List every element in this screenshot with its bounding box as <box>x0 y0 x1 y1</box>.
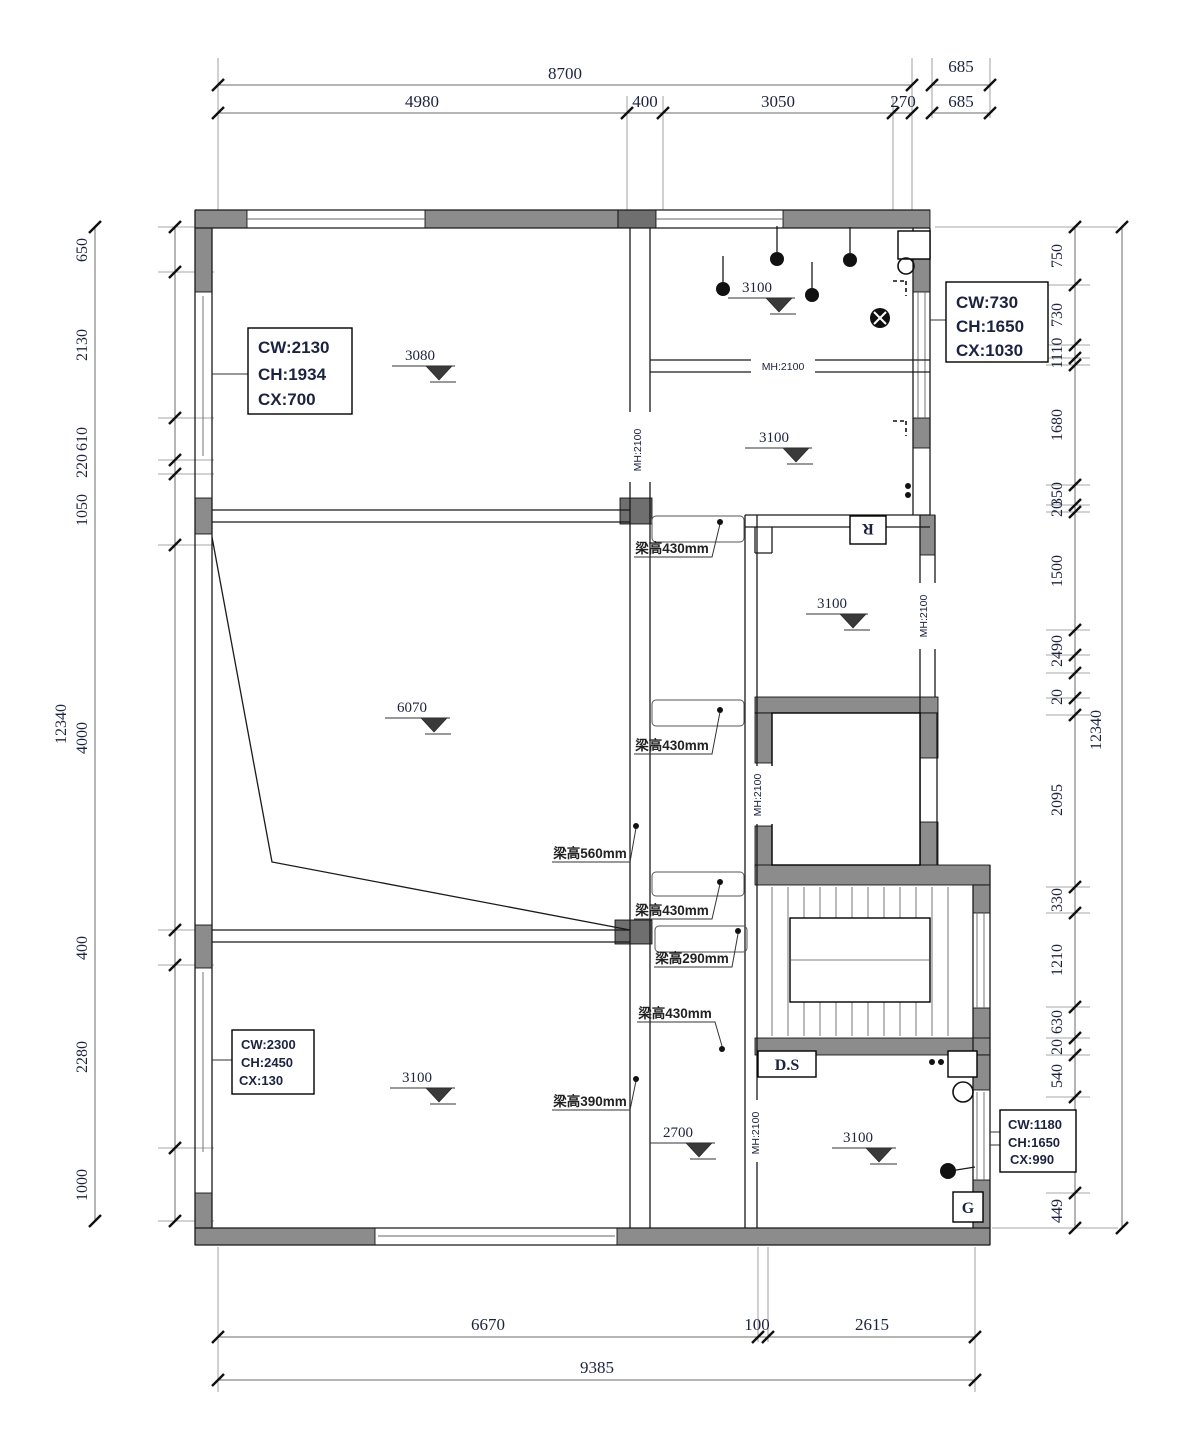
dim-right-seg: 2095 <box>1049 784 1066 816</box>
switch-icon <box>893 421 906 436</box>
dim-right-seg: 1210 <box>1049 944 1066 976</box>
svg-text:CW:1180: CW:1180 <box>1008 1117 1062 1132</box>
svg-text:3080: 3080 <box>405 348 435 364</box>
svg-text:CH:2450: CH:2450 <box>241 1055 293 1070</box>
elevation-room-bottom-right: 3100 <box>832 1130 897 1164</box>
dim-right-seg: 330 <box>1049 888 1066 912</box>
svg-text:CX:990: CX:990 <box>1010 1152 1054 1167</box>
pendant-light-icon <box>940 1163 956 1179</box>
elevation-room-top-right-1: 3100 <box>728 280 796 314</box>
door-height-label: MH:2100 <box>752 774 764 817</box>
dim-left-seg: 1000 <box>74 1169 91 1201</box>
svg-text:CX:700: CX:700 <box>258 390 316 409</box>
dim-right-seg: 540 <box>1049 1064 1066 1088</box>
dim-bottom-seg: 2615 <box>855 1315 889 1334</box>
beam-height-label: 梁高290mm <box>654 950 729 966</box>
tag-gas: G <box>962 1200 975 1217</box>
door-height-label: MH:2100 <box>918 595 930 638</box>
svg-text:CW:730: CW:730 <box>956 293 1018 312</box>
door-height-label: MH:2100 <box>750 1112 762 1155</box>
exhaust-fan-icon <box>870 308 890 328</box>
svg-text:CH:1650: CH:1650 <box>1008 1135 1060 1150</box>
dim-left-seg: 650 <box>74 238 91 262</box>
svg-text:3100: 3100 <box>742 280 772 296</box>
beams <box>652 516 747 952</box>
bottom-dimension-chain: 6670 100 2615 9385 <box>212 1247 981 1392</box>
beam-height-label: 梁高430mm <box>634 902 709 918</box>
dim-right-seg: 750 <box>1049 244 1066 268</box>
svg-text:3100: 3100 <box>817 596 847 612</box>
cabinet-box <box>898 231 930 259</box>
dim-bottom-seg: 100 <box>744 1315 770 1334</box>
pendant-light-icon <box>843 253 857 267</box>
svg-text:3100: 3100 <box>843 1130 873 1146</box>
dim-top-seg: 3050 <box>761 92 795 111</box>
pendant-light-icon <box>805 288 819 302</box>
beam-height-label: 梁高430mm <box>634 540 709 556</box>
elevation-room-bottom-left: 3100 <box>390 1070 456 1104</box>
svg-text:CX:130: CX:130 <box>239 1073 283 1088</box>
beam-height-label: 梁高430mm <box>637 1005 712 1021</box>
socket-icon <box>905 483 911 489</box>
dim-left-total: 12340 <box>53 704 70 744</box>
dim-left-seg: 4000 <box>74 722 91 754</box>
ceiling-light-icon <box>898 258 914 274</box>
dim-right-seg: 449 <box>1049 1199 1066 1223</box>
beam-height-label: 梁高560mm <box>552 845 627 861</box>
switch-icon <box>893 281 906 296</box>
svg-text:CW:2130: CW:2130 <box>258 338 330 357</box>
svg-text:CH:1650: CH:1650 <box>956 317 1024 336</box>
dim-right-seg: 20 <box>1049 1039 1066 1055</box>
elevation-room-big: 6070 <box>385 700 451 734</box>
pendant-light-icon <box>716 282 730 296</box>
dim-right-seg: 1110 <box>1049 338 1066 369</box>
dim-right-seg: 630 <box>1049 1010 1066 1034</box>
dim-right-seg: 1500 <box>1049 555 1066 587</box>
svg-text:CH:1934: CH:1934 <box>258 365 327 384</box>
top-dimension-chain: 8700 685 4980 400 3050 270 685 <box>212 57 996 212</box>
dim-left-seg: 400 <box>74 936 91 960</box>
dim-right-total: 12340 <box>1088 710 1105 750</box>
dim-right-seg: 2490 <box>1049 635 1066 667</box>
elevation-corridor: 2700 <box>650 1125 716 1159</box>
socket-icon <box>929 1059 935 1065</box>
cabinet-box <box>948 1051 977 1077</box>
floor-plan-canvas: 8700 685 4980 400 3050 270 685 6670 100 … <box>0 0 1200 1432</box>
elevation-room-top-left: 3080 <box>392 348 456 382</box>
socket-icon <box>938 1059 944 1065</box>
dim-top-seg: 400 <box>632 92 658 111</box>
door-height-label: MH:2100 <box>762 361 805 373</box>
dim-right-seg: 20 <box>1049 501 1066 517</box>
ceiling-light-icon <box>953 1082 973 1102</box>
dim-left-seg: 610 <box>74 427 91 451</box>
dim-left-seg: 220 <box>74 454 91 478</box>
tag-riser: R <box>862 520 874 537</box>
tag-downspout: D.S <box>775 1057 800 1074</box>
dim-right-seg: 730 <box>1049 303 1066 327</box>
socket-icon <box>905 492 911 498</box>
svg-text:CW:2300: CW:2300 <box>241 1037 296 1052</box>
svg-text:3100: 3100 <box>402 1070 432 1086</box>
dim-bottom-overall: 9385 <box>580 1358 614 1377</box>
dim-top-offset-lower: 685 <box>948 92 974 111</box>
left-dimension-chain: 650 2130 610 220 1050 4000 400 2280 1000… <box>53 221 214 1227</box>
dim-top-seg: 4980 <box>405 92 439 111</box>
dim-bottom-seg: 6670 <box>471 1315 505 1334</box>
dim-top-seg: 270 <box>890 92 916 111</box>
beam-labels: 梁高430mm 梁高430mm 梁高560mm 梁高430mm 梁高290mm … <box>552 519 741 1110</box>
svg-text:3100: 3100 <box>759 430 789 446</box>
door-height-label: MH:2100 <box>632 429 644 472</box>
svg-text:2700: 2700 <box>663 1125 693 1141</box>
dim-left-seg: 2280 <box>74 1041 91 1073</box>
dim-left-seg: 1050 <box>74 494 91 526</box>
elevation-room-top-right-2: 3100 <box>745 430 813 464</box>
pendant-light-icon <box>770 252 784 266</box>
dim-left-seg: 2130 <box>74 329 91 361</box>
elevation-room-mid-right: 3100 <box>806 596 870 630</box>
dim-right-seg: 20 <box>1049 689 1066 705</box>
dim-top-overall: 8700 <box>548 64 582 83</box>
beam-height-label: 梁高390mm <box>552 1093 627 1109</box>
dim-top-offset-upper: 685 <box>948 57 974 76</box>
floor-plan-page: 8700 685 4980 400 3050 270 685 6670 100 … <box>0 0 1200 1432</box>
beam-height-label: 梁高430mm <box>634 737 709 753</box>
svg-text:6070: 6070 <box>397 700 427 716</box>
dim-right-seg: 1680 <box>1049 409 1066 441</box>
svg-text:CX:1030: CX:1030 <box>956 341 1023 360</box>
